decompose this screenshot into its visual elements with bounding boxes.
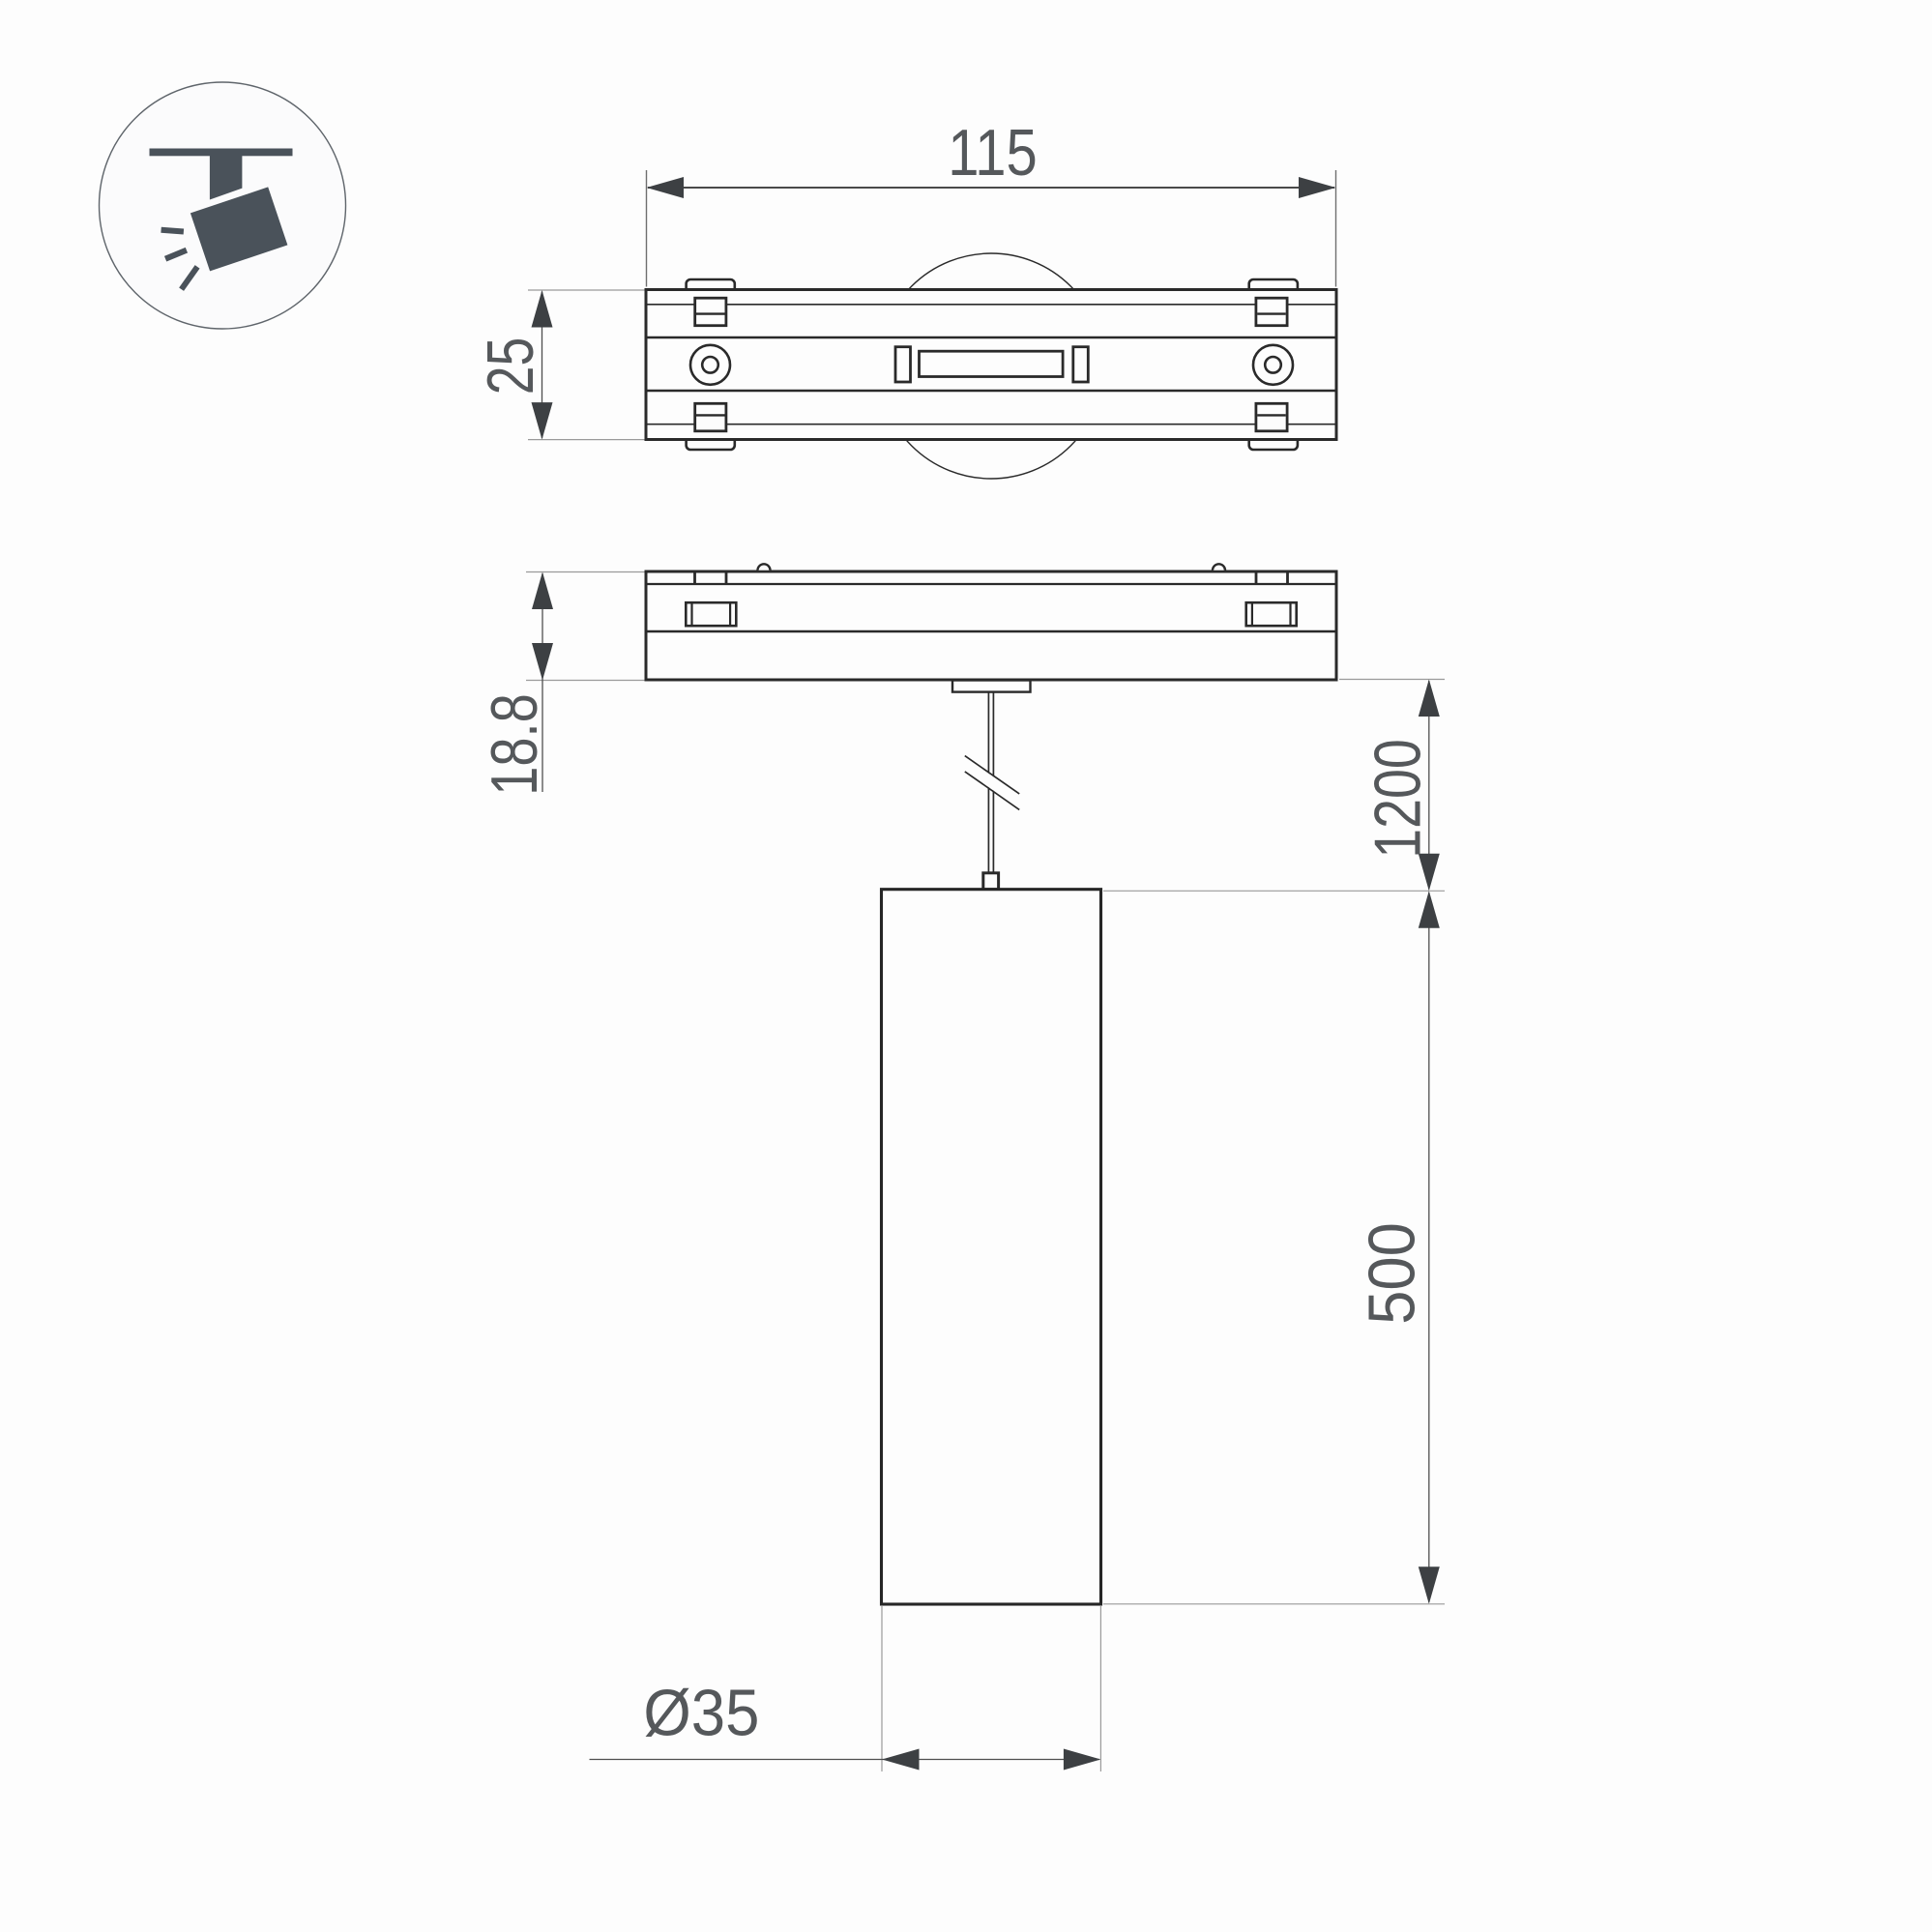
svg-text:1200: 1200 — [1361, 739, 1435, 859]
svg-text:500: 500 — [1355, 1222, 1428, 1325]
svg-text:25: 25 — [474, 337, 547, 395]
svg-text:18.8: 18.8 — [478, 693, 551, 796]
svg-text:Ø35: Ø35 — [643, 1677, 759, 1750]
svg-text:115: 115 — [948, 116, 1038, 190]
